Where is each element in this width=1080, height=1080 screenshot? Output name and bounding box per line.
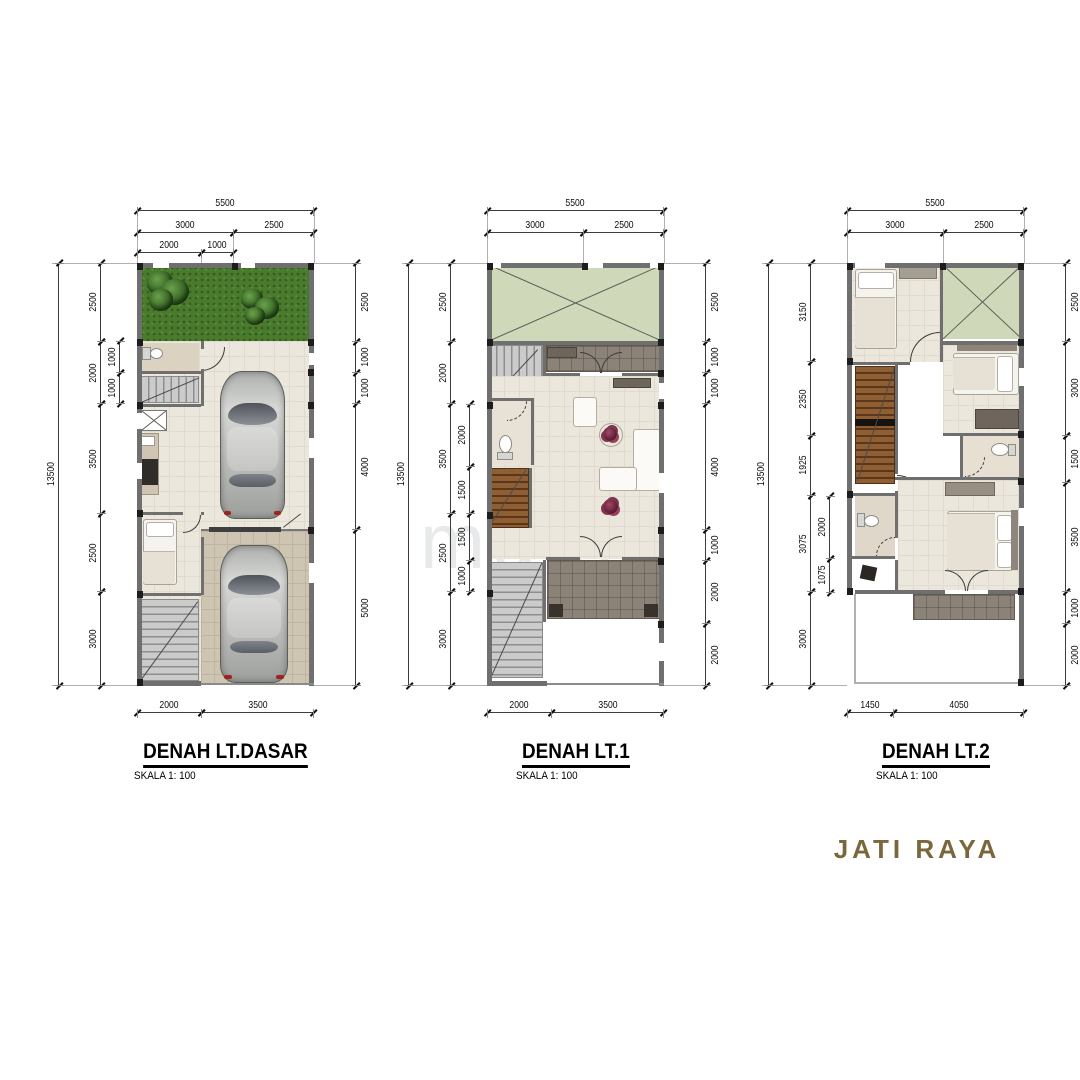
dimension-extension (765, 685, 774, 686)
dimension-extension (405, 263, 414, 264)
toilet-tank (497, 452, 513, 460)
dimension-label: 2500 (264, 219, 283, 231)
dimension-extension (826, 496, 835, 497)
dimension-extension (466, 466, 475, 467)
window (309, 353, 314, 365)
dimension-extension (702, 623, 711, 624)
dimension-extension (807, 591, 816, 592)
bed-pillow (997, 356, 1013, 392)
window (1019, 508, 1024, 526)
dimension-segment: 2500 (355, 263, 356, 341)
column (137, 402, 143, 409)
toilet-bowl-icon (150, 348, 163, 359)
void-x-icon (489, 265, 662, 341)
car-icon (220, 545, 288, 683)
window (659, 643, 664, 661)
dimension-label: 2000 (437, 363, 449, 382)
dimension-label: 2500 (437, 293, 449, 312)
window (309, 563, 314, 583)
bed-pillow (146, 522, 174, 537)
toilet-bowl-icon (864, 515, 879, 527)
witness-line (762, 685, 847, 686)
window (587, 263, 603, 268)
dimension-segment: 3000 (810, 592, 811, 686)
dimension-label: 3500 (1069, 528, 1080, 547)
column (137, 591, 143, 598)
dimension-extension (1062, 591, 1071, 592)
column (1018, 339, 1024, 346)
dimension-extension (466, 560, 475, 561)
bed-pillow (997, 542, 1012, 568)
dimension-segment: 1000 (705, 529, 706, 560)
plot-edge-line (854, 682, 1019, 684)
dimension-label: 2000 (816, 518, 828, 537)
column (847, 263, 853, 270)
void-area (943, 265, 1022, 339)
dimension-segment: 1000 (705, 341, 706, 372)
dimension-extension (97, 685, 106, 686)
dimension-label: 1500 (1069, 449, 1080, 468)
dimension-extension (352, 341, 361, 342)
bed-duvet (947, 513, 995, 570)
wall (847, 263, 852, 594)
dimension-extension (847, 709, 848, 718)
dimension-segment: 1000 (119, 372, 120, 403)
wall (137, 681, 201, 686)
bed-duvet (855, 297, 895, 348)
dimension-label: 1000 (106, 378, 118, 397)
witness-line (402, 685, 487, 686)
dimension-segment: 2000 (705, 561, 706, 624)
dimension-extension (466, 513, 475, 514)
dimension-extension (702, 685, 711, 686)
column (658, 402, 664, 409)
title-box: DENAH LT.DASAR SKALA 1: 100 (134, 740, 317, 782)
kitchen-sink (141, 436, 155, 446)
dimension-extension (1062, 623, 1071, 624)
dimension-extension (466, 404, 475, 405)
headboard (1011, 510, 1018, 570)
dimension-label: 3500 (87, 449, 99, 468)
window (137, 463, 142, 479)
column (658, 527, 664, 534)
dimension-extension (137, 709, 138, 718)
dimension-extension (765, 263, 774, 264)
column (487, 402, 493, 409)
dimension-segment: 3000 (450, 592, 451, 686)
car-rear-window (230, 641, 279, 653)
column (137, 510, 143, 517)
dimension-extension (1023, 229, 1024, 238)
dimension-label: 1000 (709, 379, 721, 398)
dimension-segment: 1925 (810, 435, 811, 495)
plan-scale: SKALA 1: 100 (516, 770, 624, 782)
column (232, 263, 238, 270)
dimension-extension (447, 403, 456, 404)
column (1018, 431, 1024, 438)
wall (531, 398, 534, 465)
dimension-segment: 1000 (469, 561, 470, 592)
dimension-segment: 2500 (584, 232, 664, 233)
dimension-extension (137, 207, 138, 216)
flower-centerpiece (603, 499, 618, 514)
bed-pillow (858, 272, 894, 289)
toilet-bowl-icon (499, 435, 512, 453)
dimension-segment: 1000 (705, 373, 706, 404)
dimension-label: 1075 (816, 566, 828, 585)
dimension-extension (807, 263, 816, 264)
dimension-segment: 3500 (1065, 482, 1066, 592)
dimension-segment: 2500 (100, 263, 101, 341)
dimension-label: 4050 (949, 699, 968, 711)
wall (529, 468, 532, 528)
dimension-label: 1000 (359, 347, 371, 366)
dimension-label: 1000 (359, 379, 371, 398)
bed-duvet (143, 551, 175, 584)
car-taillight (224, 511, 232, 515)
dimension-extension (352, 529, 361, 530)
window (659, 383, 664, 399)
dimension-extension (487, 709, 488, 718)
dimension-label: 2000 (1069, 645, 1080, 664)
dimension-extension (1062, 482, 1071, 483)
void-x-icon (943, 265, 1022, 339)
dimension-segment: 13500 (408, 263, 409, 686)
dimension-segment: 2350 (810, 362, 811, 436)
dimension-segment: 2000 (100, 341, 101, 404)
toilet-tank (1008, 444, 1016, 456)
dimension-label: 3500 (248, 699, 267, 711)
dimension-extension (663, 229, 664, 238)
dimension-extension (405, 685, 414, 686)
wall (849, 556, 895, 559)
dimension-label: 2500 (87, 293, 99, 312)
dimension-label: 3500 (598, 699, 617, 711)
console-table (547, 347, 577, 358)
dimension-segment: 4000 (355, 404, 356, 529)
dimension-segment: 1500 (469, 467, 470, 514)
dimension-label: 5500 (566, 197, 585, 209)
dimension-segment: 3000 (487, 232, 584, 233)
wall (943, 433, 1022, 436)
stove (140, 459, 158, 485)
dimension-label: 3000 (526, 219, 545, 231)
column (1018, 263, 1024, 270)
column (308, 369, 314, 376)
dimension-extension (352, 372, 361, 373)
dimension-label: 2500 (974, 219, 993, 231)
dimension-extension (1062, 263, 1071, 264)
dimension-extension (1062, 341, 1071, 342)
planter-box (549, 604, 563, 617)
plan-scale: SKALA 1: 100 (134, 770, 299, 782)
dimension-segment: 1075 (829, 559, 830, 593)
column (308, 402, 314, 409)
dimension-label: 3075 (797, 534, 809, 553)
dimension-extension (702, 560, 711, 561)
dimension-segment: 1450 (847, 712, 894, 713)
dimension-label: 5500 (216, 197, 235, 209)
wall (895, 362, 898, 474)
wall (139, 371, 201, 374)
dimension-label: 1500 (456, 528, 468, 547)
column (308, 527, 314, 534)
floorplan-sheet: maind (0, 0, 1080, 1080)
dimension-segment: 2500 (100, 514, 101, 592)
column (308, 339, 314, 346)
dimension-extension (447, 341, 456, 342)
dimension-label: 3000 (886, 219, 905, 231)
dimension-segment: 1000 (355, 373, 356, 404)
dimension-label: 2000 (709, 645, 721, 664)
dimension-segment: 2000 (1065, 623, 1066, 686)
dimension-label: 13500 (755, 463, 767, 487)
plan-title-block: DENAH LT.2 SKALA 1: 100 (827, 740, 1044, 784)
flower-centerpiece (603, 427, 617, 441)
plan-scale: SKALA 1: 100 (876, 770, 984, 782)
plan-title: DENAH LT.2 (882, 740, 990, 768)
dimension-segment: 4050 (894, 712, 1024, 713)
dimension-extension (233, 229, 234, 238)
planter-box (644, 604, 658, 617)
dimension-segment: 1500 (469, 514, 470, 561)
dimension-extension (807, 435, 816, 436)
column (847, 491, 853, 498)
column (1018, 478, 1024, 485)
plan-title-block: DENAH LT.DASAR SKALA 1: 100 (117, 740, 334, 784)
window (1019, 368, 1024, 386)
dimension-label: 13500 (395, 463, 407, 487)
wall (487, 263, 664, 268)
dimension-segment: 2000 (487, 712, 551, 713)
dimension-extension (201, 709, 202, 718)
dimension-label: 2000 (160, 239, 179, 251)
dimension-label: 1000 (208, 239, 227, 251)
plot-edge-line (201, 683, 314, 685)
title-box: DENAH LT.1 SKALA 1: 100 (516, 740, 636, 782)
plan-title-block: DENAH LT.1 SKALA 1: 100 (467, 740, 684, 784)
wall (201, 512, 204, 515)
witness-line (52, 263, 137, 264)
car-rear-window (229, 474, 276, 487)
dimension-segment: 13500 (768, 263, 769, 686)
dimension-extension (893, 709, 894, 718)
dimension-segment: 3075 (810, 496, 811, 592)
dimension-label: 1000 (709, 535, 721, 554)
dimension-extension (97, 263, 106, 264)
dimension-segment: 2500 (450, 514, 451, 592)
wall (139, 404, 201, 407)
dimension-label: 3500 (437, 449, 449, 468)
dimension-segment: 3000 (847, 232, 944, 233)
dimension-segment: 3000 (100, 592, 101, 686)
window (153, 263, 169, 268)
dimension-extension (55, 263, 64, 264)
car-taillight (274, 511, 282, 515)
car-roof (227, 427, 279, 471)
dimension-label: 3000 (176, 219, 195, 231)
dimension-extension (447, 591, 456, 592)
plot-edge-line (547, 683, 664, 685)
column (658, 263, 664, 270)
wall (849, 493, 895, 496)
shaft-box (141, 410, 167, 431)
dimension-extension (943, 229, 944, 238)
dimension-extension (702, 529, 711, 530)
dimension-extension (702, 263, 711, 264)
dimension-segment: 2000 (705, 623, 706, 686)
dimension-segment: 5500 (137, 210, 314, 211)
dimension-label: 2500 (709, 293, 721, 312)
car-windshield (228, 403, 277, 425)
dimension-extension (233, 249, 234, 258)
wall (201, 341, 204, 349)
dimension-segment: 3500 (450, 404, 451, 514)
dimension-extension (447, 685, 456, 686)
wall (895, 495, 898, 538)
dimension-extension (137, 249, 138, 258)
column (658, 621, 664, 628)
dimension-extension (97, 341, 106, 342)
dimension-label: 2000 (510, 699, 529, 711)
dimension-label: 1000 (456, 567, 468, 586)
dimension-segment: 1000 (355, 341, 356, 372)
car-icon (220, 371, 285, 519)
dimension-label: 1000 (1069, 598, 1080, 617)
wardrobe (957, 345, 1017, 351)
dimension-segment: 5500 (487, 210, 664, 211)
wood-stairs (489, 468, 529, 528)
dimension-label: 2500 (1069, 293, 1080, 312)
dimension-segment: 2500 (450, 263, 451, 341)
dimension-segment: 2000 (450, 341, 451, 404)
dimension-extension (201, 249, 202, 258)
column (1018, 588, 1024, 595)
dimension-extension (1062, 435, 1071, 436)
car-roof (227, 598, 281, 639)
dimension-segment: 2000 (829, 496, 830, 559)
wall (847, 362, 910, 365)
column (308, 263, 314, 270)
dimension-label: 1450 (861, 699, 880, 711)
dimension-segment: 4000 (705, 404, 706, 529)
dimension-segment: 3500 (551, 712, 664, 713)
dimension-segment: 5000 (355, 529, 356, 686)
dimension-extension (826, 558, 835, 559)
balcony-floor (913, 594, 1015, 620)
column (487, 512, 493, 519)
dimension-label: 4000 (359, 457, 371, 476)
toilet-bowl-icon (991, 443, 1009, 456)
dimension-label: 13500 (45, 463, 57, 487)
shaft-x-icon (142, 411, 166, 430)
void-area (489, 265, 662, 341)
dimension-label: 1500 (456, 481, 468, 500)
sofa (599, 467, 637, 491)
wall (309, 263, 314, 686)
column (487, 263, 493, 270)
dimension-extension (847, 207, 848, 216)
title-box: DENAH LT.2 SKALA 1: 100 (876, 740, 996, 782)
window (241, 263, 255, 268)
dimension-label: 2000 (709, 582, 721, 601)
dimension-extension (702, 403, 711, 404)
column (940, 263, 946, 270)
dimension-label: 3150 (797, 303, 809, 322)
window (309, 438, 314, 458)
dimension-extension (847, 229, 848, 238)
dimension-extension (583, 229, 584, 238)
dimension-segment: 2500 (944, 232, 1024, 233)
wall (139, 512, 183, 515)
dimension-label: 2000 (456, 426, 468, 445)
dimension-extension (55, 685, 64, 686)
dimension-extension (313, 709, 314, 718)
witness-line (762, 263, 847, 264)
sofa (633, 429, 661, 491)
dimension-extension (116, 341, 125, 342)
window (137, 413, 142, 429)
dimension-segment: 2500 (705, 263, 706, 341)
dimension-label: 2500 (614, 219, 633, 231)
dimension-extension (313, 207, 314, 216)
dimension-label: 3000 (797, 629, 809, 648)
dimension-segment: 5500 (847, 210, 1024, 211)
dimension-segment: 2000 (137, 712, 201, 713)
dimension-label: 4000 (709, 457, 721, 476)
dimension-label: 1000 (106, 347, 118, 366)
dimension-extension (352, 263, 361, 264)
dimension-segment: 1500 (1065, 435, 1066, 482)
column (487, 590, 493, 597)
wall (960, 433, 963, 479)
column (847, 588, 853, 595)
column (487, 339, 493, 346)
dimension-extension (807, 685, 816, 686)
dimension-extension (97, 513, 106, 514)
wall (1019, 263, 1024, 686)
dimension-label: 3000 (87, 629, 99, 648)
dimension-extension (487, 229, 488, 238)
dimension-segment: 1000 (119, 341, 120, 372)
wall (487, 681, 547, 686)
dimension-extension (97, 403, 106, 404)
car-taillight (224, 675, 232, 679)
dimension-label: 2350 (797, 389, 809, 408)
dimension-extension (807, 495, 816, 496)
armchair (573, 397, 597, 427)
dimension-extension (116, 372, 125, 373)
garage-door (209, 527, 281, 532)
dimension-segment: 2500 (1065, 263, 1066, 341)
dimension-label: 2500 (359, 293, 371, 312)
column (137, 679, 143, 686)
witness-line (52, 685, 137, 686)
wall (895, 560, 898, 592)
car-taillight (276, 675, 284, 679)
dimension-label: 2500 (437, 543, 449, 562)
dimension-extension (826, 592, 835, 593)
bed-pillow (997, 515, 1012, 541)
dimension-label: 1925 (797, 456, 809, 475)
dimension-extension (663, 709, 664, 718)
bed-duvet (953, 357, 995, 390)
dimension-extension (1023, 709, 1024, 718)
dresser (945, 482, 995, 496)
window (855, 263, 885, 268)
dimension-segment: 1000 (201, 252, 233, 253)
dimension-label: 2000 (87, 363, 99, 382)
